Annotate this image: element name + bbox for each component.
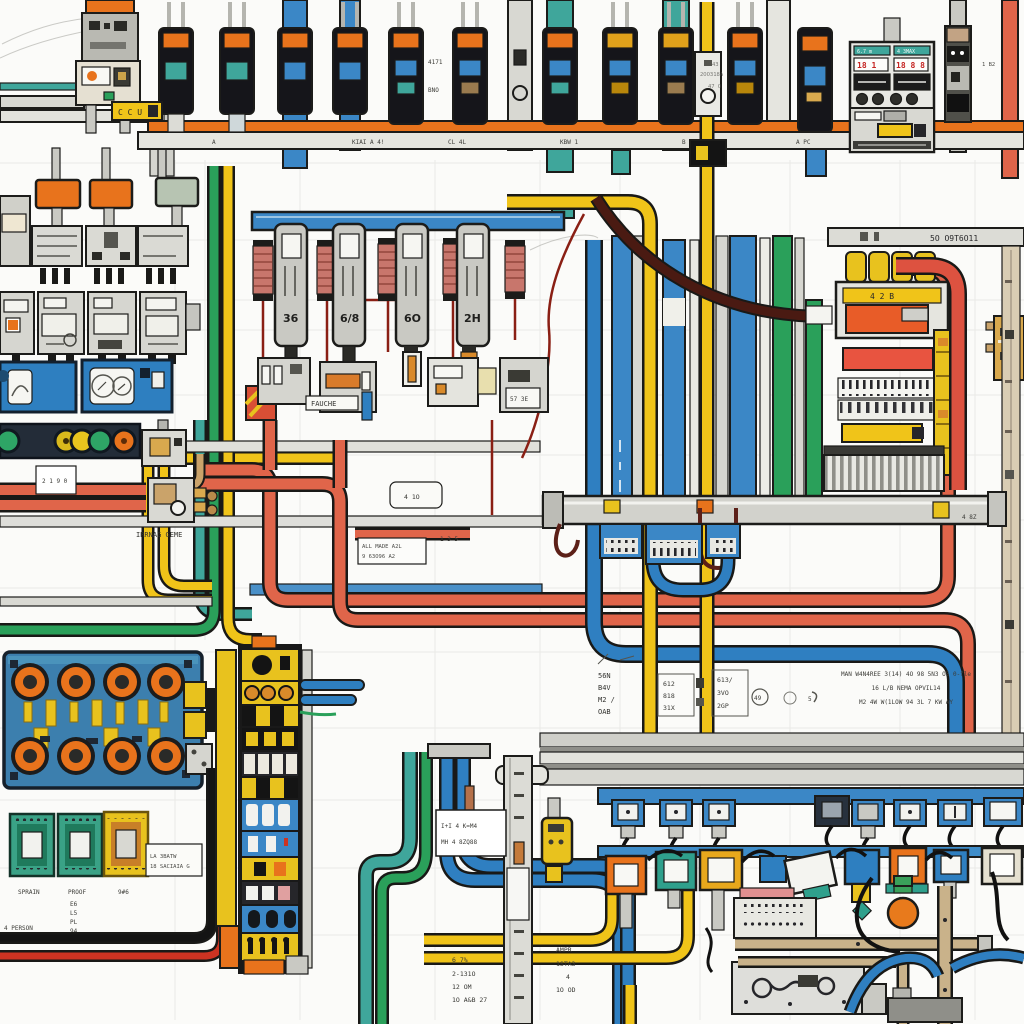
module-label: 36 [283, 312, 299, 325]
hanging-module [894, 800, 926, 852]
blue-tab-device [845, 850, 879, 920]
base-label: 57 3E [510, 396, 528, 403]
toroid [57, 737, 95, 775]
top-note-b2: 2OO318A [700, 72, 724, 78]
annotation-circles: 49 5 [752, 689, 817, 705]
middle-fuse-modules: 36 6/8 6O 2H FAUCHE [246, 224, 548, 420]
bus-tag: 4 8Z [962, 514, 977, 521]
toroid [103, 737, 141, 775]
mid-b-3: 1O OD [556, 986, 576, 994]
right-line-0: MAN W4N4REE 3(14) 4O 98 5N3 O5 0-fle [841, 671, 971, 678]
wiring-diagram-illustration: A KIAI A 4! CL 4L KBW 1 B M4 A PC [0, 0, 1024, 1024]
cable-connector [389, 2, 423, 124]
ic-chip-green-2 [58, 814, 102, 876]
strip-mark: 1 B2 [982, 62, 995, 68]
control-header-right: 4 3MAX [897, 49, 915, 55]
ann-a-1: B4V [598, 684, 611, 692]
cable-connector [798, 28, 832, 132]
chip-col-0: E6 [70, 901, 78, 908]
cable-connector [543, 28, 577, 124]
relay-row-1 [32, 226, 188, 266]
white-box-line1: ALL MADE A2L [362, 544, 402, 550]
ccu-tag: C C U [118, 108, 142, 117]
tan-device [982, 848, 1022, 884]
toroid [11, 737, 49, 775]
mast [504, 756, 532, 1024]
mid-a-0: 6 7% [452, 956, 468, 964]
person-note: 4 PERSON [4, 925, 33, 932]
right-bus-bar [828, 228, 1024, 246]
control-unit: 6.7 m 4 3MAX 18 1 18 8 8 [850, 18, 934, 152]
orange-ball-device [886, 848, 928, 928]
bus-mark-5: A PC [796, 139, 811, 146]
bus-mark-2: CL 4L [448, 139, 466, 146]
bundle-top-clamp [428, 744, 490, 758]
bl-label-line1: LA 3BATW [150, 854, 177, 860]
right-line-2: M2 4W W(1LOW 94 3L 7 KW AY [859, 699, 953, 706]
hanging-module [984, 798, 1022, 852]
toroid [147, 663, 185, 701]
gray-module: 2H [457, 224, 489, 372]
pink-fuse [505, 240, 525, 299]
toroid [147, 737, 185, 775]
cable-connector [728, 2, 762, 124]
cable-connector [220, 2, 254, 132]
module-label: 2H [464, 312, 481, 325]
chip-col-2: PL [70, 919, 78, 926]
mid-b-2: 4 [566, 973, 570, 981]
blue-hanger-modules [600, 524, 740, 590]
ann-c-2: 2GP [717, 702, 729, 710]
terminal-column [216, 636, 364, 974]
ann-a-2: M2 / [598, 696, 615, 704]
toroid [57, 663, 95, 701]
pink-fuse [253, 240, 273, 301]
gray-module: 36 [275, 224, 307, 362]
chip-label-0: SPRAIN [18, 889, 40, 896]
heatsink [824, 446, 944, 491]
module-label: 6O [404, 312, 421, 325]
mid-a-3: 1O A&B 27 [452, 996, 487, 1004]
top-note-b1: 43 [712, 62, 719, 68]
gray-module: 6/8 [333, 224, 365, 362]
cable-connector [603, 2, 637, 124]
cable-connector [278, 28, 312, 114]
chip-col-1: L5 [70, 910, 78, 917]
module-bases: FAUCHE 57 3E [246, 358, 548, 420]
annotation-block-b: 612 818 31X [658, 674, 704, 716]
bus-mark-1: KIAI A 4! [352, 139, 385, 146]
toroid [103, 663, 141, 701]
gray-module: 6O [396, 224, 428, 386]
diagram-svg: A KIAI A 4! CL 4L KBW 1 B M4 A PC [0, 0, 1024, 1024]
bl-label-box [146, 844, 202, 876]
right-bus-text: 5O O9T6O11 [930, 234, 978, 243]
relay-pin-row [40, 268, 176, 284]
mid-b-1: 1STA3 [556, 960, 576, 968]
control-digits-left: 18 1 [857, 61, 876, 70]
control-digits-right: 18 8 8 [896, 61, 925, 70]
ic-chip-yellow [104, 812, 148, 876]
tick-box-line2: MH 4 8ZQ88 [441, 839, 478, 846]
left-note: IRRNAG GEME [136, 531, 182, 539]
dip-switch-rows [838, 378, 942, 420]
ic-chip-green-1 [10, 814, 54, 876]
top-note-a1: 4171 [428, 59, 443, 66]
right-panel: 5O O9T6O11 4 2 B [824, 228, 1024, 746]
white-tick-box: I+I 4 K=M4 MH 4 8ZQ88 [436, 810, 506, 856]
ann-b-1: 818 [663, 692, 675, 700]
mid-a-1: 2-131O [452, 970, 476, 978]
dark-connector [945, 26, 971, 122]
chip-label-1: PROOF [68, 889, 86, 896]
blue-gauge-panel [0, 360, 172, 412]
mid-a-2: 12 OM [452, 983, 472, 991]
bottom-striped-bus [496, 733, 1024, 785]
green-cap [894, 876, 912, 886]
tick-box-line1: I+I 4 K=M4 [441, 823, 478, 830]
red-return-wire [0, 892, 222, 956]
top-left-device: C C U [76, 0, 162, 133]
cable-connector [453, 2, 487, 124]
bus-mark-3: KBW 1 [560, 139, 578, 146]
right-panel-label: 4 2 B [870, 292, 894, 301]
right-line-1: 16 L/B NEMA OPVIL14 [872, 685, 941, 692]
ann-a-0: 56N [598, 672, 611, 680]
ann-c-1: 3VO [717, 689, 729, 697]
pcb-board [4, 652, 220, 788]
fuse-tag: FAUCHE [311, 400, 336, 408]
ann-circle-1: 49 [754, 695, 762, 702]
red-block [843, 348, 933, 370]
module-label: 6/8 [340, 312, 359, 325]
yellow-bar [842, 424, 922, 442]
mini-label-text: 2 1 9 0 [42, 478, 68, 485]
ann-a-3: OAB [598, 708, 611, 716]
control-header-left: 6.7 m [857, 49, 872, 55]
toroid [11, 663, 49, 701]
white-box-line2: 9 63O96 A2 [362, 554, 395, 560]
mid-b-0: AMPR [556, 946, 572, 954]
top-note-a2: BNO [428, 87, 439, 94]
chip-row: SPRAIN PROOF 9#6 E6 L5 PL 94 4 PERSON LA… [4, 812, 202, 935]
pcb-edge-connector [184, 682, 220, 774]
wire-tag: 1 3 5 [440, 536, 458, 543]
hanging-module [938, 800, 972, 852]
relay-row-2 [0, 292, 200, 354]
indicator-strip [0, 424, 140, 458]
ann-circle-2: 5 [808, 696, 812, 703]
bus-mark-0: A [212, 139, 216, 146]
ann-b-2: 31X [663, 704, 675, 712]
chip-label-2: 9#6 [118, 889, 129, 896]
ann-c-0: 613/ [717, 676, 733, 684]
ann-b-0: 612 [663, 680, 675, 688]
annotation-block-c: 613/ 3VO 2GP [712, 670, 748, 716]
bl-label-line2: 18 SACIAIA G [150, 864, 190, 870]
yellow-rail-plate [690, 52, 726, 166]
center-bus: 4 8Z [543, 492, 1006, 590]
top-note-b3: 47 O [708, 84, 721, 90]
small-box-text: 4 1O [404, 493, 420, 501]
annotation-block-a: 56N B4V M2 / OAB [598, 654, 634, 716]
junction-device-a [142, 420, 186, 466]
cable-connector [159, 2, 193, 132]
hanging-module [815, 796, 849, 852]
